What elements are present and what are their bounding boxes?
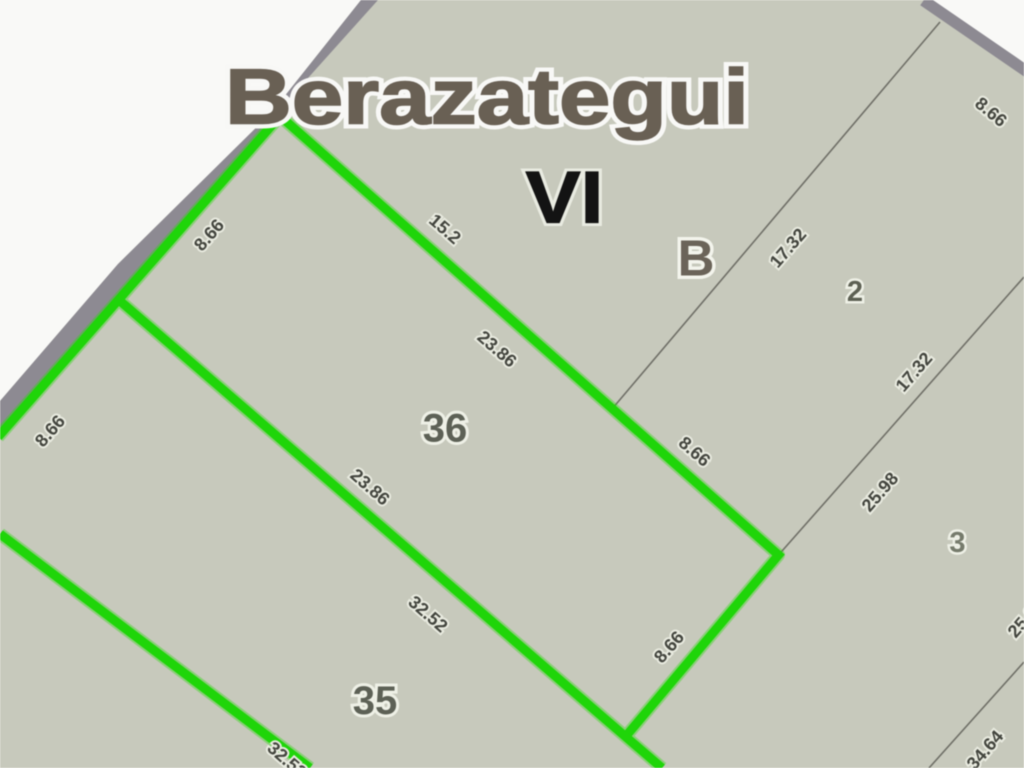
svg-text:Berazategui: Berazategui xyxy=(225,55,749,141)
svg-text:3: 3 xyxy=(949,527,965,559)
svg-text:35: 35 xyxy=(353,679,398,723)
svg-text:VI: VI xyxy=(526,157,604,238)
svg-text:36: 36 xyxy=(423,407,468,451)
svg-text:B: B xyxy=(678,230,715,287)
svg-text:2: 2 xyxy=(847,276,863,308)
